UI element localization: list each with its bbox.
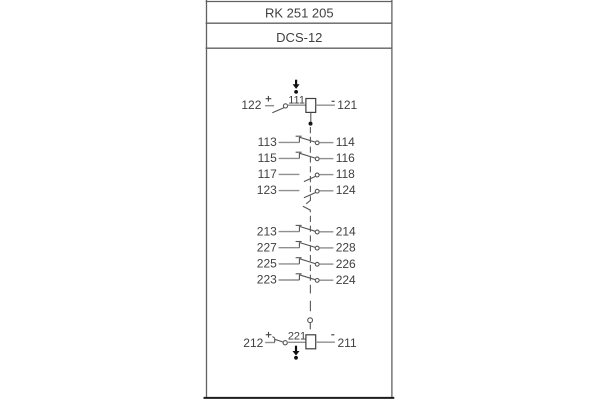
svg-text:123: 123 — [257, 183, 277, 197]
svg-text:117: 117 — [258, 167, 277, 181]
svg-text:RK 251 205: RK 251 205 — [265, 5, 334, 20]
svg-text:226: 226 — [336, 257, 356, 271]
svg-text:115: 115 — [258, 151, 277, 165]
svg-text:114: 114 — [336, 135, 355, 149]
svg-text:221: 221 — [288, 331, 306, 343]
svg-text:224: 224 — [336, 273, 356, 287]
svg-text:223: 223 — [257, 273, 277, 287]
svg-text:225: 225 — [257, 257, 277, 271]
svg-text:124: 124 — [336, 183, 356, 197]
svg-text:122: 122 — [241, 98, 261, 112]
svg-text:213: 213 — [257, 224, 277, 238]
svg-text:121: 121 — [337, 98, 357, 112]
svg-text:113: 113 — [258, 135, 277, 149]
svg-text:211: 211 — [338, 336, 357, 350]
svg-text:214: 214 — [336, 225, 356, 239]
svg-text:212: 212 — [243, 336, 263, 350]
svg-text:118: 118 — [336, 167, 355, 181]
svg-text:228: 228 — [336, 241, 356, 255]
svg-text:DCS-12: DCS-12 — [276, 30, 322, 45]
svg-text:116: 116 — [336, 151, 355, 165]
svg-text:227: 227 — [257, 240, 277, 254]
